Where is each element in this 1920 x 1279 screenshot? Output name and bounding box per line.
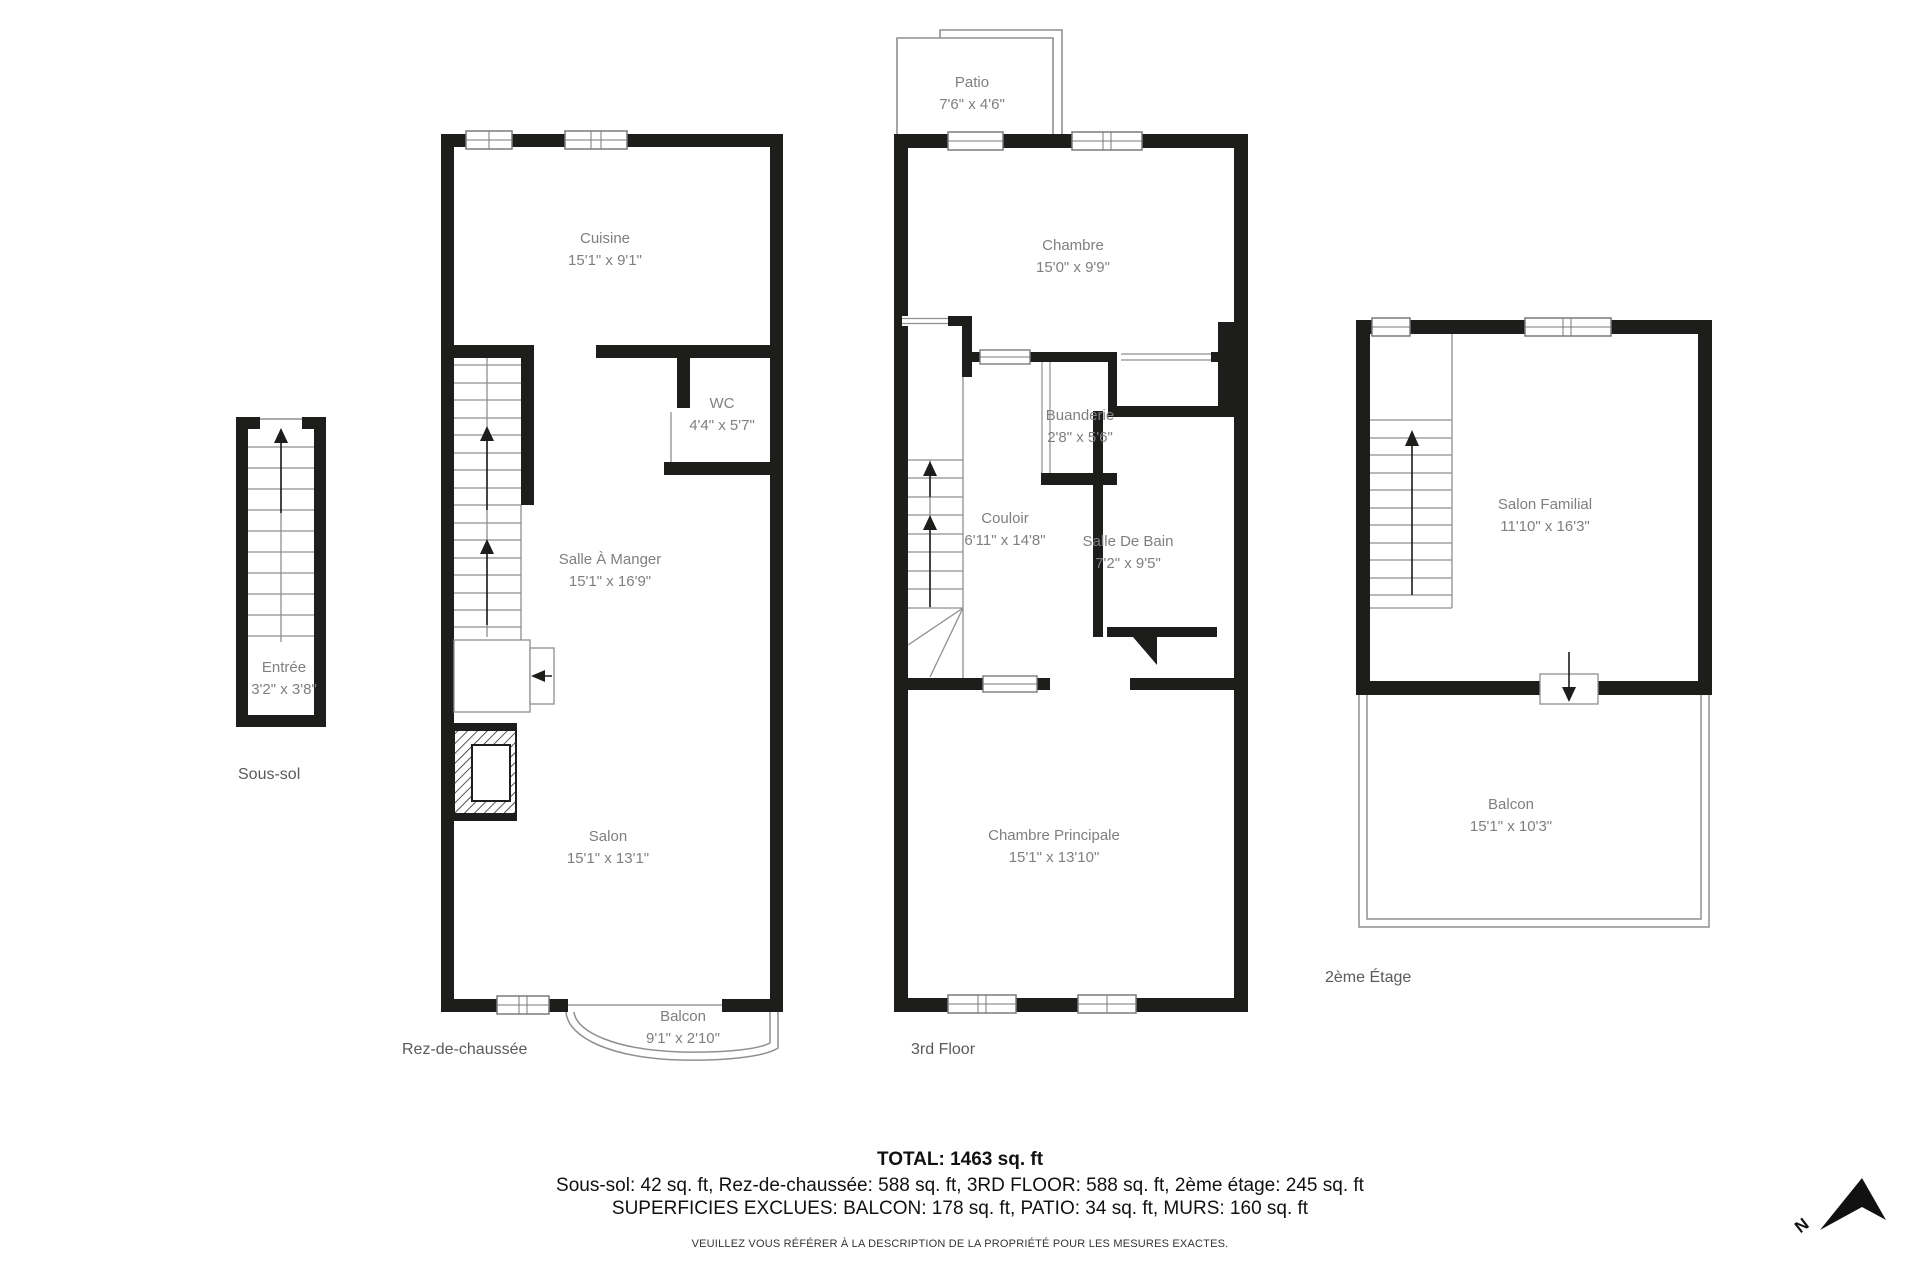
room-label-couloir: Couloir 6'11" x 14'8" <box>964 508 1045 552</box>
room-name: Cuisine <box>568 228 642 250</box>
up-arrow <box>923 461 937 497</box>
window <box>565 131 627 149</box>
room-dims: 11'10" x 16'3" <box>1498 516 1592 538</box>
window <box>466 131 512 149</box>
room-label-wc: WC 4'4" x 5'7" <box>689 393 755 437</box>
stair-landing <box>454 640 530 712</box>
room-label-chambre: Chambre 15'0" x 9'9" <box>1036 235 1110 279</box>
stairs <box>1370 334 1452 608</box>
room-dims: 7'6" x 4'6" <box>939 94 1005 116</box>
room-dims: 9'1" x 2'10" <box>646 1028 720 1050</box>
floorplan-canvas <box>0 0 1920 1279</box>
window <box>983 676 1037 692</box>
room-label-balcon-rdc: Balcon 9'1" x 2'10" <box>646 1006 720 1050</box>
room-label-salon-familial: Salon Familial 11'10" x 16'3" <box>1498 494 1592 538</box>
room-dims: 3'2" x 3'8" <box>251 679 317 701</box>
room-name: Entrée <box>251 657 317 679</box>
room-dims: 15'0" x 9'9" <box>1036 257 1110 279</box>
floor-label-rdc: Rez-de-chaussée <box>402 1041 527 1059</box>
room-label-buanderie: Buanderie 2'8" x 5'6" <box>1046 405 1114 449</box>
floorplan-page: Entrée 3'2" x 3'8" Cuisine 15'1" x 9'1" … <box>0 0 1920 1279</box>
window <box>497 996 549 1014</box>
room-name: Salon <box>567 826 649 848</box>
room-name: Chambre <box>1036 235 1110 257</box>
room-name: Salle À Manger <box>559 549 662 571</box>
room-dims: 2'8" x 5'6" <box>1046 427 1114 449</box>
entry-door <box>530 648 554 704</box>
room-label-patio: Patio 7'6" x 4'6" <box>939 72 1005 116</box>
room-name: Salle De Bain <box>1083 531 1174 553</box>
interior-glass-wall <box>1121 354 1211 360</box>
window <box>1525 318 1611 336</box>
room-name: Couloir <box>964 508 1045 530</box>
angled-wall <box>1133 637 1157 665</box>
room-label-salon: Salon 15'1" x 13'1" <box>567 826 649 870</box>
room-name: Balcon <box>1470 794 1552 816</box>
balcony-exit-door <box>1540 652 1598 704</box>
fireplace <box>454 724 516 820</box>
room-dims: 15'1" x 10'3" <box>1470 816 1552 838</box>
window <box>948 132 1003 150</box>
door-opening <box>1050 678 1130 690</box>
window <box>948 995 1016 1013</box>
room-name: Balcon <box>646 1006 720 1028</box>
summary-excluded: SUPERFICIES EXCLUES: BALCON: 178 sq. ft,… <box>0 1198 1920 1220</box>
room-label-balcon-etage2: Balcon 15'1" x 10'3" <box>1470 794 1552 838</box>
window <box>980 350 1030 364</box>
room-name: Chambre Principale <box>988 825 1120 847</box>
window <box>1078 995 1136 1013</box>
floor-label-etage2: 2ème Étage <box>1325 969 1411 987</box>
room-dims: 15'1" x 13'1" <box>567 848 649 870</box>
room-name: Salon Familial <box>1498 494 1592 516</box>
up-arrow <box>480 426 494 510</box>
up-arrow <box>274 428 288 513</box>
floor-label-sous-sol: Sous-sol <box>238 766 300 784</box>
up-arrow <box>923 515 937 607</box>
up-arrow <box>480 539 494 625</box>
room-dims: 4'4" x 5'7" <box>689 415 755 437</box>
window <box>1072 132 1142 150</box>
floor-label-3rd: 3rd Floor <box>911 1041 975 1059</box>
window <box>1372 318 1410 336</box>
room-name: Patio <box>939 72 1005 94</box>
room-dims: 15'1" x 16'9" <box>559 571 662 593</box>
room-name: Buanderie <box>1046 405 1114 427</box>
room-name: WC <box>689 393 755 415</box>
room-label-salle-a-manger: Salle À Manger 15'1" x 16'9" <box>559 549 662 593</box>
room-label-entree: Entrée 3'2" x 3'8" <box>251 657 317 701</box>
summary-disclaimer: VEUILLEZ VOUS RÉFÉRER À LA DESCRIPTION D… <box>0 1238 1920 1250</box>
room-dims: 6'11" x 14'8" <box>964 530 1045 552</box>
room-label-salle-de-bain: Salle De Bain 7'2" x 9'5" <box>1083 531 1174 575</box>
interior-opening <box>902 316 948 326</box>
summary-by-floor: Sous-sol: 42 sq. ft, Rez-de-chaussée: 58… <box>0 1175 1920 1197</box>
room-dims: 7'2" x 9'5" <box>1083 553 1174 575</box>
room-dims: 15'1" x 13'10" <box>988 847 1120 869</box>
room-dims: 15'1" x 9'1" <box>568 250 642 272</box>
room-label-cuisine: Cuisine 15'1" x 9'1" <box>568 228 642 272</box>
summary-total: TOTAL: 1463 sq. ft <box>0 1149 1920 1171</box>
room-label-chambre-principale: Chambre Principale 15'1" x 13'10" <box>988 825 1120 869</box>
